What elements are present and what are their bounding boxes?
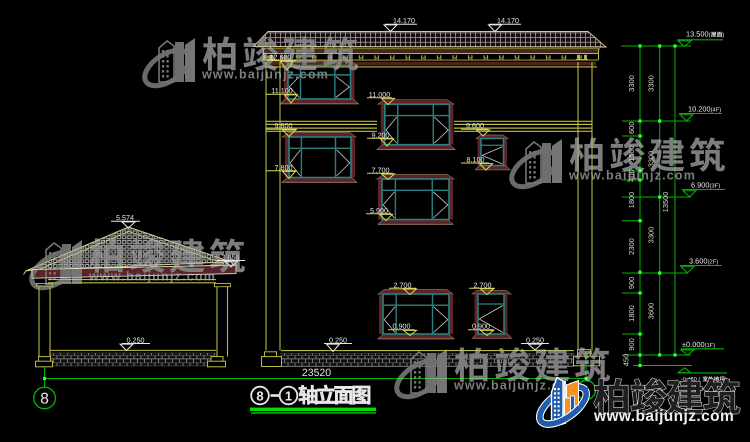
svg-text:14.170: 14.170 <box>393 16 415 25</box>
svg-text:3300: 3300 <box>627 75 636 92</box>
svg-text:8: 8 <box>40 390 49 407</box>
svg-text:www.baijunjz.com: www.baijunjz.com <box>593 408 734 425</box>
svg-text:13.500(: 13.500( <box>686 30 711 39</box>
svg-text:3300: 3300 <box>647 227 656 244</box>
svg-text:900: 900 <box>627 277 636 290</box>
svg-text:3600: 3600 <box>647 303 656 320</box>
svg-text:0.900: 0.900 <box>392 322 410 331</box>
svg-text:1800: 1800 <box>627 192 636 209</box>
svg-text:14.170: 14.170 <box>497 16 519 25</box>
svg-text:1800: 1800 <box>627 305 636 322</box>
svg-text:1: 1 <box>285 388 292 403</box>
svg-text:900: 900 <box>627 338 636 351</box>
svg-text:2300: 2300 <box>627 238 636 255</box>
svg-text:): ) <box>722 33 724 39</box>
svg-text:www.baijunjz.com: www.baijunjz.com <box>568 169 696 183</box>
svg-text:9.600: 9.600 <box>274 121 292 130</box>
svg-text:0.900: 0.900 <box>472 322 490 331</box>
svg-text:23520: 23520 <box>302 367 331 379</box>
svg-text:600: 600 <box>627 122 636 135</box>
svg-text:www.baijunjz.com: www.baijunjz.com <box>201 68 329 82</box>
svg-text:450: 450 <box>622 354 631 367</box>
svg-text:13500: 13500 <box>661 192 670 213</box>
svg-text:11.100: 11.100 <box>271 86 292 95</box>
svg-text:3300: 3300 <box>647 75 656 92</box>
svg-text:5.574: 5.574 <box>116 213 134 222</box>
svg-text:9.600: 9.600 <box>466 121 484 130</box>
svg-text:8: 8 <box>256 388 263 403</box>
svg-text:www.baijunjz.com: www.baijunjz.com <box>88 270 216 284</box>
